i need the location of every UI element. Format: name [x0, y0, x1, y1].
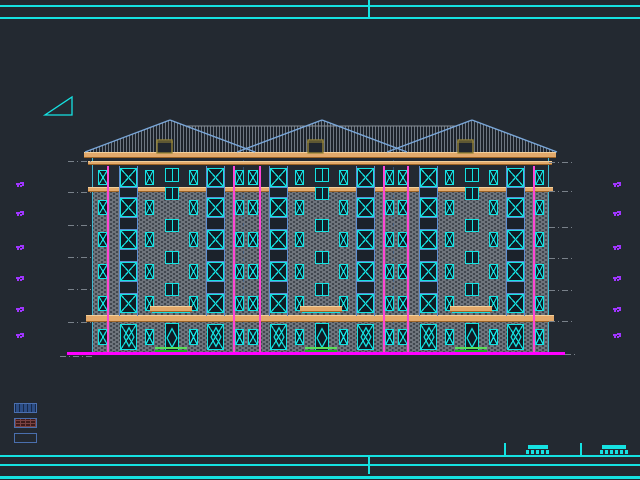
slope-symbol-icon	[0, 0, 640, 480]
cad-canvas	[0, 0, 640, 480]
